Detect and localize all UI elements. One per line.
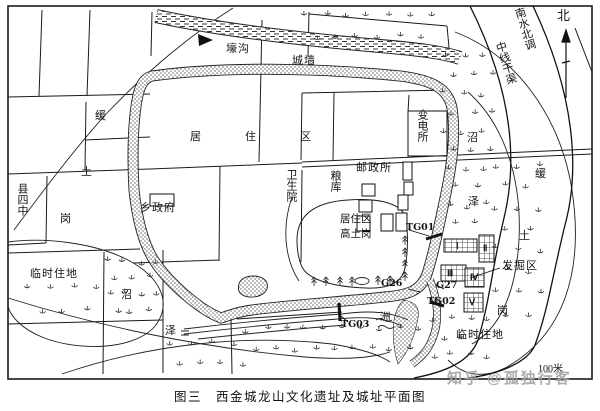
label-clinic: 卫生院 bbox=[285, 169, 296, 202]
label-residential-inner: 居住区 bbox=[340, 214, 372, 226]
grove-oval bbox=[355, 278, 369, 285]
label-ditch-g27: G27 bbox=[436, 281, 457, 292]
label-islet: 洲 bbox=[380, 312, 391, 324]
label-huan-right: 缓 bbox=[535, 168, 547, 180]
label-block-1: Ⅰ bbox=[456, 241, 459, 251]
label-block-4: Ⅳ bbox=[470, 272, 478, 282]
label-gang-left: 岗 bbox=[60, 213, 72, 225]
label-township-gov: 乡政府 bbox=[140, 202, 176, 214]
label-post-office: 邮政所 bbox=[356, 162, 392, 174]
label-city-wall: 城墙 bbox=[292, 55, 316, 67]
label-block-3: Ⅲ bbox=[447, 268, 453, 278]
label-huan-left: 缓 bbox=[95, 110, 107, 122]
label-block-5: Ⅴ bbox=[469, 297, 475, 307]
label-granary: 粮库 bbox=[329, 170, 340, 192]
label-trench-tg02: TG02 bbox=[427, 297, 455, 308]
label-county-school: 县四中 bbox=[16, 183, 27, 216]
label-ze-right: 泽 bbox=[468, 196, 480, 208]
label-tu-left: 土 bbox=[81, 166, 93, 178]
label-gang-right: 岗 bbox=[497, 305, 509, 317]
pond bbox=[238, 276, 267, 297]
label-north: 北 bbox=[557, 9, 570, 24]
label-excavation-area: 发掘区 bbox=[502, 260, 538, 272]
label-tu-right: 土 bbox=[519, 230, 531, 242]
label-trench-tg03: TG03 bbox=[341, 320, 369, 331]
label-temp-camp-left: 临时住地 bbox=[30, 268, 78, 280]
label-high-mound: 高土岗 bbox=[340, 229, 372, 241]
label-block-2: Ⅱ bbox=[483, 243, 487, 253]
label-ze-left: 泽 bbox=[165, 325, 177, 337]
label-trench-tg01: TG01 bbox=[406, 223, 434, 234]
label-zhao-right: 沼 bbox=[467, 132, 479, 144]
site-plan-figure: 壕沟 城墙 南水北调 中线干渠 北 缓 土 县四中 岗 居住区 乡政府 卫生院 … bbox=[0, 0, 600, 411]
label-temp-camp-right: 临时住地 bbox=[456, 329, 504, 341]
label-moat: 壕沟 bbox=[226, 43, 250, 55]
label-residential-top: 居住区 bbox=[190, 131, 355, 143]
label-zhao-left: 沼 bbox=[121, 289, 133, 301]
label-substation: 变电所 bbox=[416, 109, 427, 142]
label-ditch-g26: G26 bbox=[381, 279, 402, 290]
figure-caption: 图三 西金城龙山文化遗址及城址平面图 bbox=[0, 386, 600, 405]
watermark: 知乎 @孤独行客 bbox=[447, 367, 572, 388]
